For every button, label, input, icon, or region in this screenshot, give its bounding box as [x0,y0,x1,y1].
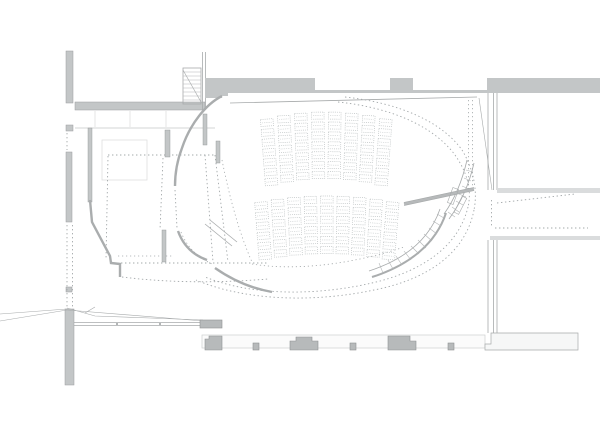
seat-detail [267,181,276,182]
curved-auditorium-wall [175,96,477,292]
seat-column [277,115,293,182]
seat-detail [273,203,282,204]
stepped-wall [90,200,120,277]
seat [376,168,389,176]
seat-column [255,202,272,260]
seat-column [367,199,383,257]
seat-detail [258,225,267,226]
seat-column [336,196,350,254]
seat-column [328,112,341,179]
seat-detail [377,181,386,182]
seat-detail [371,213,380,214]
seat-detail [262,122,271,123]
lower-seating-block [255,196,399,260]
seat [378,129,391,137]
seat [262,138,275,146]
seat-detail [385,235,394,236]
seat-column [359,115,375,182]
seat-detail [259,235,268,236]
seat-detail [263,132,272,133]
seat-detail [371,203,380,204]
seat [382,252,395,260]
wall-pier [350,343,356,350]
seat-column [288,197,303,255]
seat-detail [260,256,269,257]
seat [384,222,397,230]
seat [263,148,276,156]
seat [375,178,388,186]
seat-column [344,113,359,180]
seat-column [351,197,366,255]
seat [379,119,392,127]
seat-detail [386,225,395,226]
wall-pier [253,343,259,350]
seat-detail [368,253,377,254]
seat-detail [264,142,273,143]
window-opening [413,78,487,90]
seat-detail [377,172,386,173]
seat-column [375,119,392,186]
seat [255,212,268,220]
seat-detail [264,152,273,153]
seat-detail [369,243,378,244]
seat [259,252,272,260]
lower-left-ramp [0,307,222,328]
seat-detail [385,245,394,246]
window-opening [315,78,390,90]
seat-detail [274,223,283,224]
seat-detail [273,213,282,214]
seat [265,178,278,186]
retractable-bleachers-dotted [102,140,268,282]
seat [255,202,268,210]
seat-detail [370,233,379,234]
left-exterior-wall [65,51,74,385]
seat-detail [265,162,274,163]
seat-column [260,119,277,186]
seat [258,242,271,250]
seat [260,119,273,127]
seat-detail [266,172,275,173]
seat-detail [275,243,284,244]
seat [377,148,390,156]
seat-detail [387,215,396,216]
floor-plan-drawing [0,0,600,425]
seat-detail [381,122,390,123]
stage-wall-bars [88,114,237,277]
seat-column [304,196,318,254]
seat-detail [384,256,393,257]
floor-plan-page [0,0,600,425]
seat-detail [256,205,265,206]
seat-detail [260,245,269,246]
seat-detail [275,233,284,234]
seat-detail [380,132,389,133]
bottom-facade-wall [202,333,578,350]
seat-detail [388,205,397,206]
seat-column [321,196,334,254]
seat-detail [276,253,285,254]
wall-pier [448,343,454,350]
wall-end-block [200,320,222,328]
bottom-right-wall [485,333,578,350]
seat-detail [370,223,379,224]
seat-column [295,113,310,180]
seat-detail [379,152,388,153]
door-leaf [454,196,467,214]
seat [264,168,277,176]
seat-detail [379,142,388,143]
seat [384,232,397,240]
seat [378,138,391,146]
seat [383,242,396,250]
seat [257,232,270,240]
seat [263,158,276,166]
top-exterior-wall [205,78,600,98]
seat-detail [257,215,266,216]
seat [385,212,398,220]
upper-left-stair [183,52,206,110]
seat [256,222,269,230]
seat-column [271,199,287,257]
seat-column [312,112,325,179]
upper-seating-block [260,112,392,186]
seat [376,158,389,166]
right-side-rooms [479,93,600,333]
seat [386,202,399,210]
seat-detail [378,162,387,163]
curved-stair [369,160,474,277]
seat [261,129,274,137]
